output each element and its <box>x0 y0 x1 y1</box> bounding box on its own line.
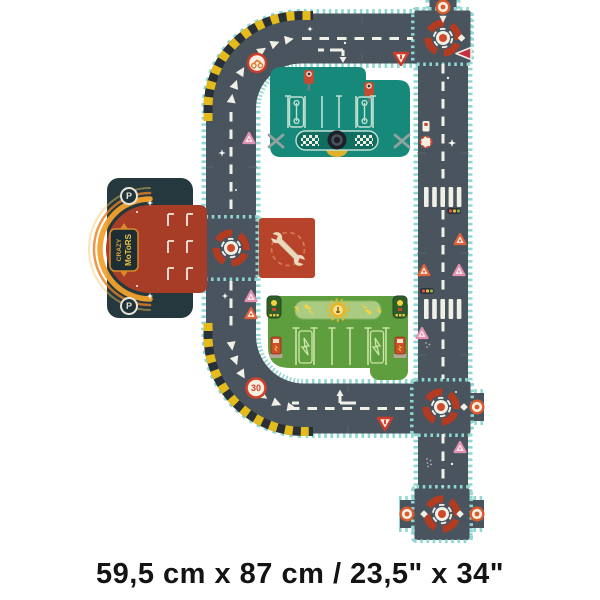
garage-piece: P P CRAZY MoToRS <box>89 178 207 318</box>
brand-line2: MoToRS <box>124 233 133 266</box>
charger-station-icon <box>270 337 283 358</box>
charger-station-icon <box>394 337 407 358</box>
lamp-post-icon <box>267 296 281 318</box>
traffic-light-icon <box>420 288 434 294</box>
lamp-post-icon <box>393 296 407 318</box>
ring-sign-icon <box>437 1 450 14</box>
dimensions-caption: 59,5 cm x 87 cm / 23,5" x 34" <box>0 558 600 591</box>
parking-letter: P <box>126 191 132 201</box>
ring-sign-icon <box>471 508 484 521</box>
charging-mat <box>267 296 408 380</box>
ring-sign-icon <box>401 508 414 521</box>
brand-line1: CRAZY <box>116 238 123 261</box>
tire-icon <box>328 131 347 150</box>
speed-limit-sign: 30 <box>247 379 266 398</box>
ring-sign-icon <box>471 401 484 414</box>
pit-stop-mat <box>269 67 410 157</box>
parking-letter: P <box>126 301 132 311</box>
speed-limit-text: 30 <box>251 383 261 393</box>
traffic-light-icon <box>447 208 461 214</box>
parking-badge: P <box>121 188 137 204</box>
repair-piece <box>259 218 315 278</box>
road-puzzle-scene: 30 <box>0 0 600 600</box>
parking-badge: P <box>121 298 137 314</box>
product-photo: 30 <box>0 0 600 600</box>
brand-badge: CRAZY MoToRS <box>110 223 138 277</box>
motorbike-sign-icon <box>248 54 266 72</box>
